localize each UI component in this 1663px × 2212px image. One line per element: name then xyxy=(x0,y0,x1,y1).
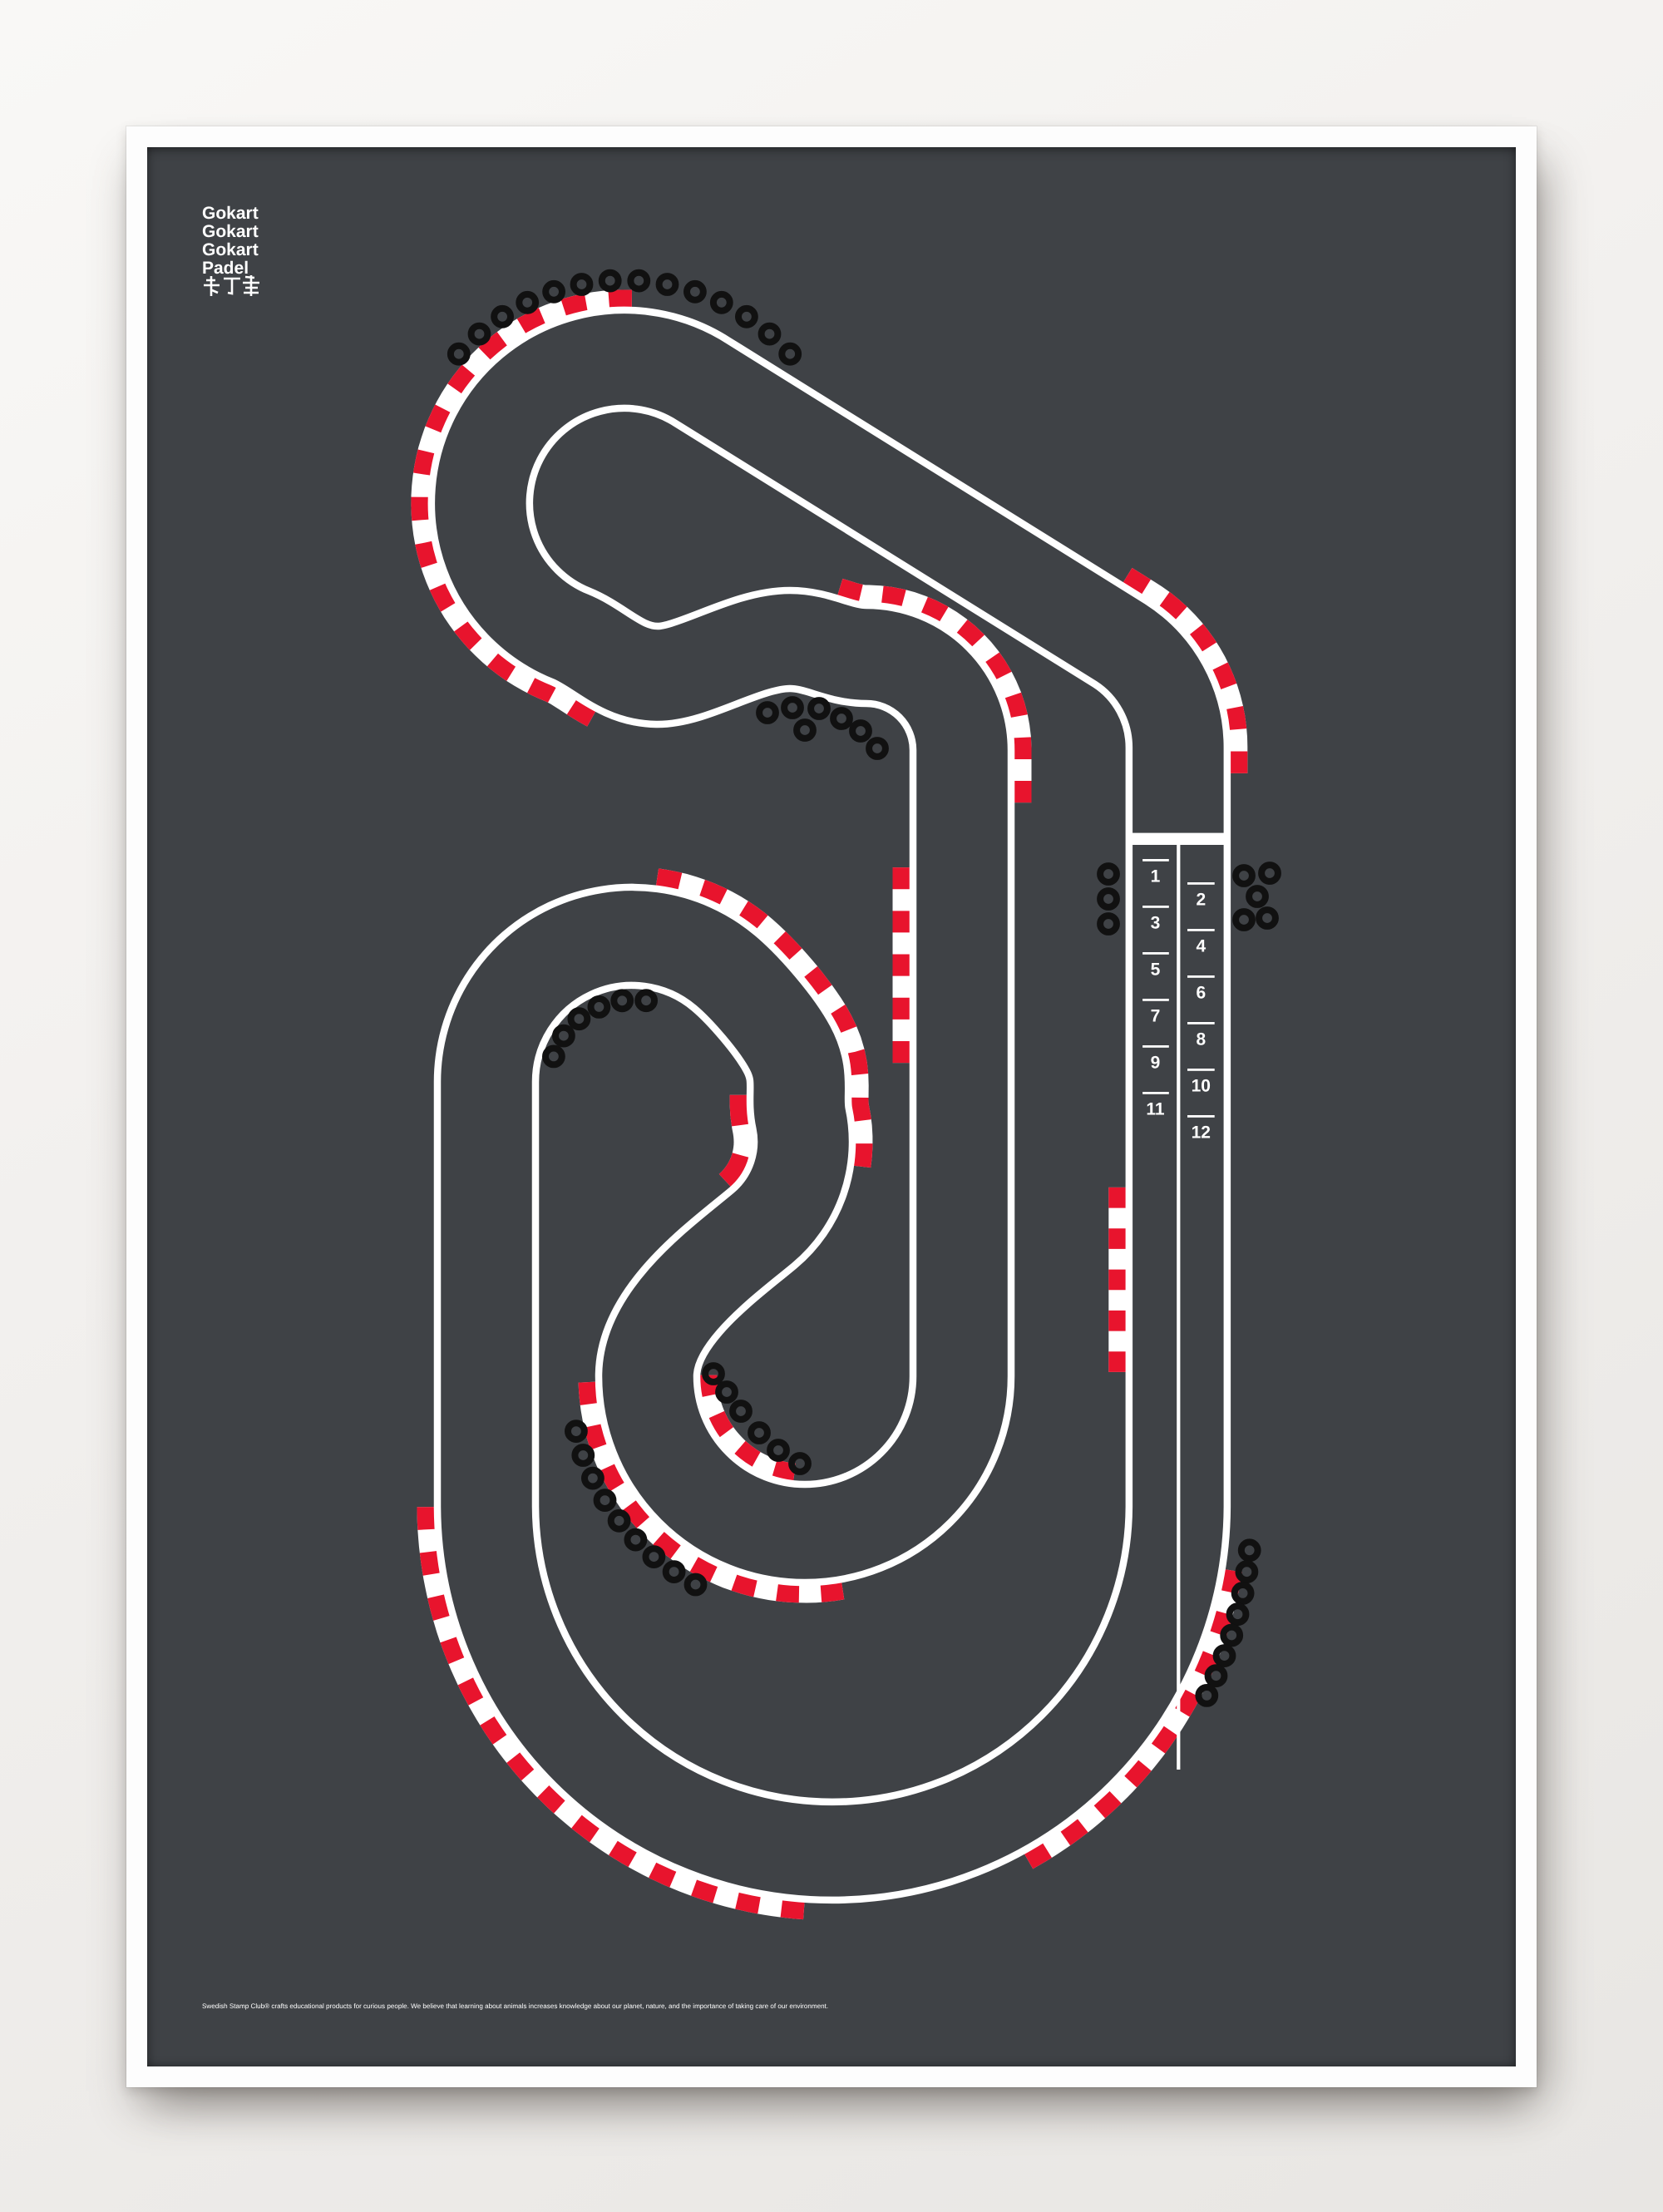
svg-text:1: 1 xyxy=(1151,867,1161,886)
svg-text:12: 12 xyxy=(1192,1123,1211,1143)
svg-text:2: 2 xyxy=(1196,891,1206,910)
svg-text:8: 8 xyxy=(1196,1030,1206,1049)
svg-text:5: 5 xyxy=(1151,960,1161,980)
svg-text:Gokart: Gokart xyxy=(202,204,259,223)
svg-text:9: 9 xyxy=(1151,1054,1161,1073)
svg-text:11: 11 xyxy=(1146,1100,1165,1119)
svg-text:Gokart: Gokart xyxy=(202,222,259,241)
svg-text:6: 6 xyxy=(1196,984,1206,1003)
svg-text:Gokart: Gokart xyxy=(202,240,259,259)
svg-text:4: 4 xyxy=(1196,937,1206,956)
svg-text:Swedish Stamp Club® crafts edu: Swedish Stamp Club® crafts educational p… xyxy=(202,2002,828,2010)
svg-text:Padel: Padel xyxy=(202,259,249,278)
svg-text:7: 7 xyxy=(1151,1007,1161,1026)
svg-text:10: 10 xyxy=(1192,1077,1211,1096)
svg-text:3: 3 xyxy=(1151,914,1161,933)
